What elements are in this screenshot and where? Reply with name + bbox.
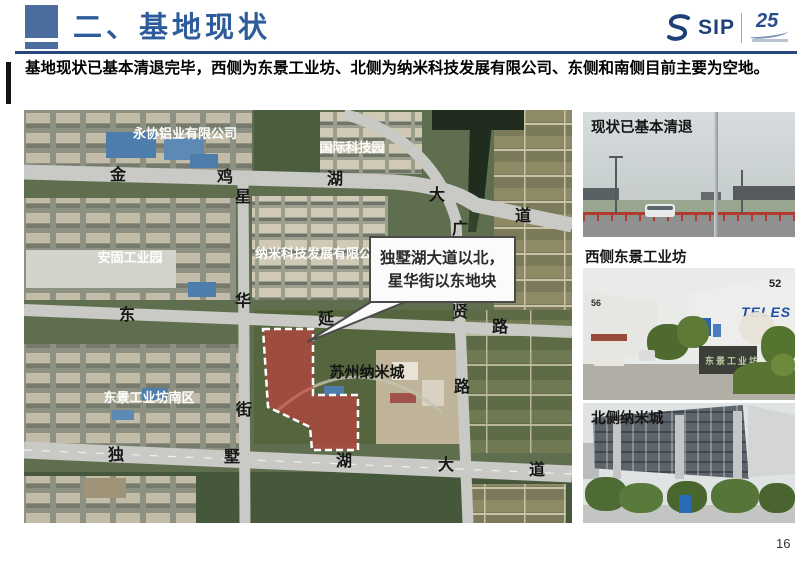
photo3-frame-column xyxy=(613,421,621,479)
photo3-tree xyxy=(711,479,759,513)
sip-s-icon xyxy=(666,14,692,42)
map-label-yongxie: 永协铝业有限公司 xyxy=(132,126,237,141)
photo-cleared-site: 现状已基本清退 xyxy=(583,112,795,237)
sip-logo: SIP 25 xyxy=(666,10,792,46)
site-callout-line2: 星华街以东地块 xyxy=(388,271,497,290)
page-number: 16 xyxy=(776,536,790,551)
photo-nanocity: 北侧纳米城 xyxy=(583,403,795,523)
photo2-sign-56: 56 xyxy=(591,298,601,308)
road-char: 路 xyxy=(454,377,471,396)
photo2-caption: 西侧东景工业坊 xyxy=(585,246,687,267)
photo2-bushes xyxy=(771,354,795,376)
photo2-booth-roof xyxy=(591,334,627,341)
anniversary-logo: 25 xyxy=(748,10,792,46)
road-char: 湖 xyxy=(336,452,352,470)
satellite-map: 永协铝业有限公司 国际科技园 安固工业园 纳米科技发展有限公司 苏州纳米城 东景… xyxy=(24,110,572,523)
photo1-light-pole-arm xyxy=(609,156,623,158)
road-char: 街 xyxy=(235,400,252,419)
site-callout-line1: 独墅湖大道以北， xyxy=(380,248,504,267)
road-char: 墅 xyxy=(224,448,240,466)
photo2-banner-flag xyxy=(713,324,721,337)
page-title: 二、基地现状 xyxy=(73,4,271,46)
sip-logo-text: SIP xyxy=(698,16,735,40)
photo1-light-pole xyxy=(741,170,743,214)
road-char: 星 xyxy=(235,188,251,206)
map-label-intl-science-park: 国际科技园 xyxy=(319,140,384,155)
road-char: 独 xyxy=(108,445,124,464)
photo2-sign-52: 52 xyxy=(769,278,781,290)
photo3-blue-sign xyxy=(679,495,691,513)
road-xinghua-street xyxy=(243,174,245,523)
map-label-dongjing-south: 东景工业坊南区 xyxy=(103,390,194,405)
photo2-tree xyxy=(677,316,709,348)
photo1-van-window xyxy=(647,206,673,210)
map-label-angu: 安固工业园 xyxy=(97,250,162,265)
road-char: 贤 xyxy=(452,303,468,321)
photo3-frame-column xyxy=(733,411,742,481)
banner-text: 基地现状已基本清退完毕，西侧为东景工业坊、北侧为纳米科技发展有限公司、东侧和南侧… xyxy=(25,58,788,80)
photo3-tree xyxy=(619,483,663,513)
road-char: 道 xyxy=(529,460,545,479)
photo1-guardrail-posts xyxy=(583,215,795,221)
header-accent-bar xyxy=(25,42,58,49)
map-label-nano-tech: 纳米科技发展有限公司 xyxy=(255,246,385,261)
photo3-tree xyxy=(759,483,795,513)
photo1-caption: 现状已基本清退 xyxy=(591,116,693,137)
photo-dongjing-industrial-park: 56 52 TELES 东景工业坊 xyxy=(583,268,795,400)
header-rule xyxy=(15,51,797,54)
road-char: 大 xyxy=(438,455,454,474)
photo1-mast-pole xyxy=(714,112,718,237)
banner-accent-bar xyxy=(6,62,11,104)
photo2-cart xyxy=(639,350,655,361)
header-accent-square xyxy=(25,5,58,38)
road-char: 大 xyxy=(429,185,445,204)
photo3-frame-column xyxy=(675,415,684,479)
road-char: 广 xyxy=(452,219,468,238)
photo3-building-side-face xyxy=(748,405,795,491)
photo2-guard-booth xyxy=(594,341,624,366)
site-callout-box xyxy=(370,237,515,302)
road-char: 东 xyxy=(119,305,135,324)
road-char: 金 xyxy=(109,165,127,184)
photo3-caption: 北侧纳米城 xyxy=(591,407,664,428)
road-char: 路 xyxy=(492,317,509,336)
road-char: 华 xyxy=(235,291,251,310)
logo-divider xyxy=(741,13,742,43)
map-label-suzhou-nanocity: 苏州纳米城 xyxy=(329,363,404,381)
photo1-light-pole xyxy=(615,156,617,214)
road-char: 道 xyxy=(515,206,531,225)
road-char: 湖 xyxy=(327,170,343,188)
slide: 二、基地现状 SIP 25 基地现状已基本清退完毕，西侧为东景工业坊、北侧为纳米… xyxy=(0,0,800,565)
road-char: 鸡 xyxy=(216,167,233,186)
anniversary-subtext-bar xyxy=(752,39,788,42)
